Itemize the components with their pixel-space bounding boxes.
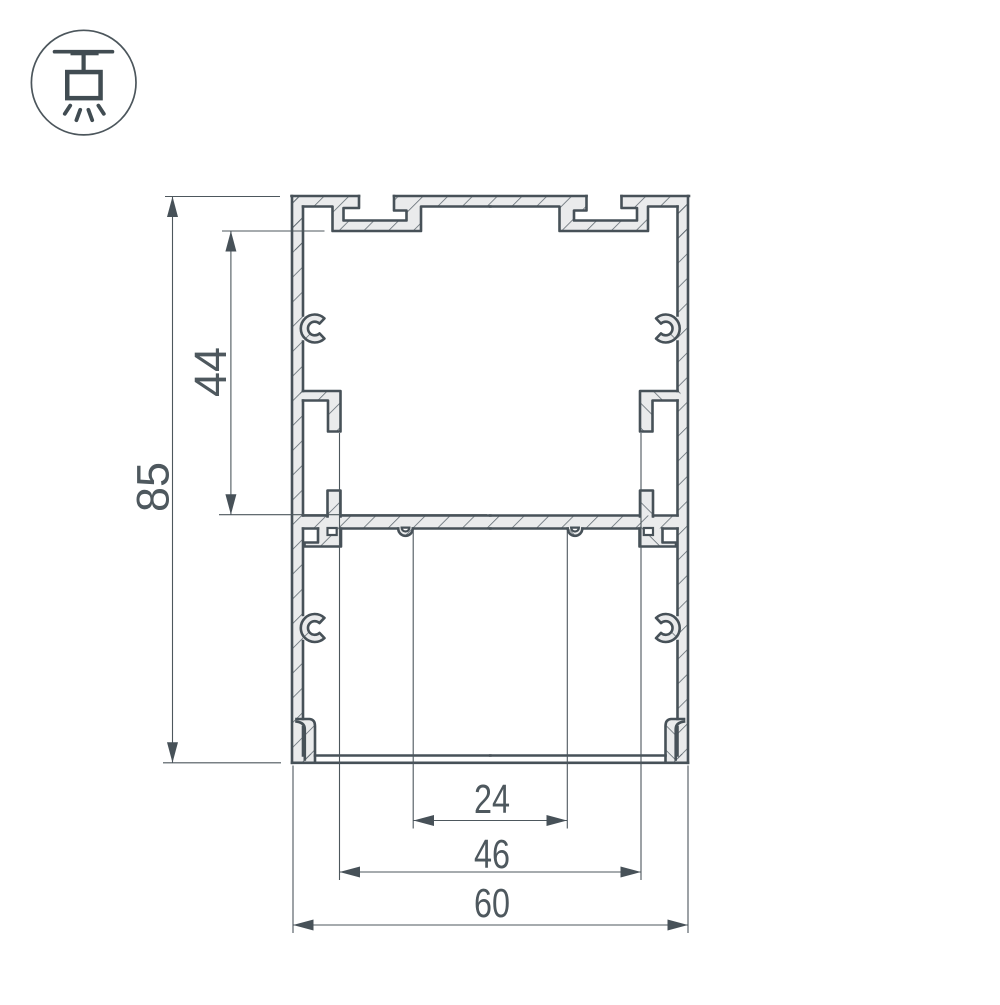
svg-text:24: 24 (474, 776, 510, 822)
svg-text:46: 46 (474, 831, 510, 877)
svg-text:44: 44 (185, 347, 236, 397)
svg-text:85: 85 (127, 462, 178, 512)
svg-text:60: 60 (474, 880, 510, 926)
